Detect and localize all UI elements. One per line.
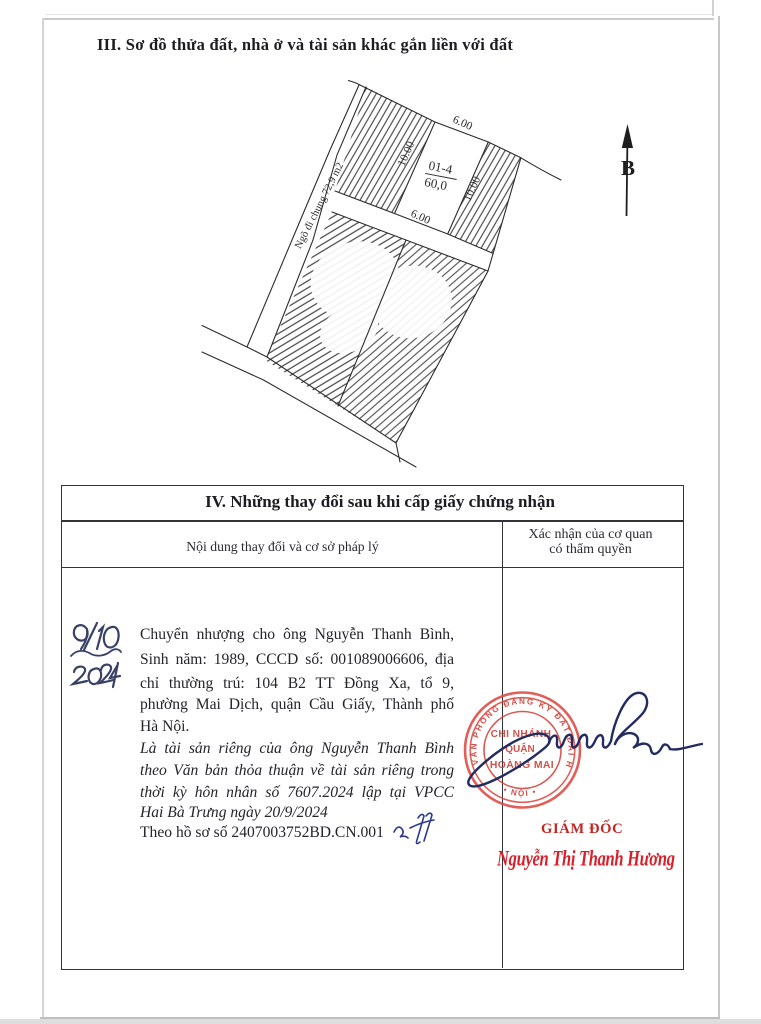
svg-text:VĂN PHÒNG ĐĂNG KÝ ĐẤT ĐAI HÀ: VĂN PHÒNG ĐĂNG KÝ ĐẤT ĐAI HÀ bbox=[0, 0, 576, 770]
